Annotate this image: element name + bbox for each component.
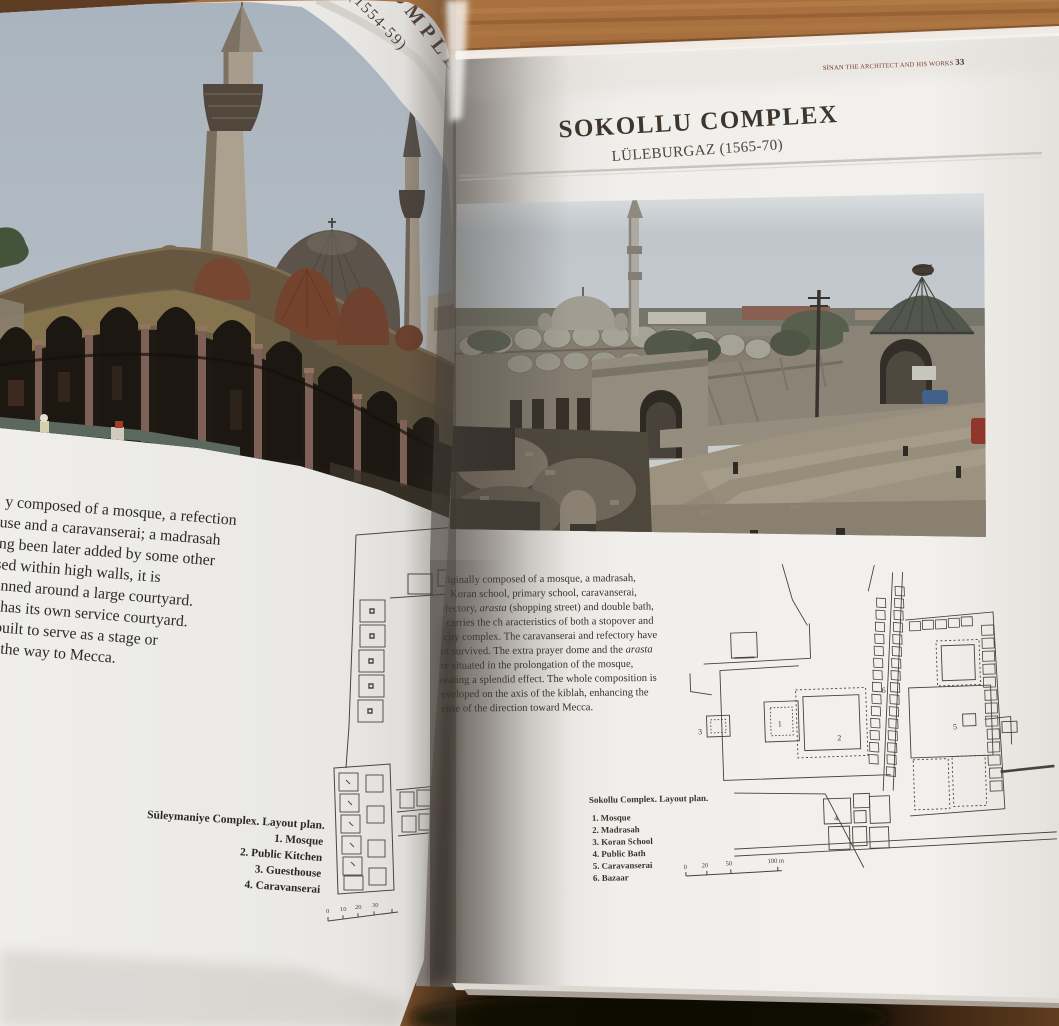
- svg-text:100 m: 100 m: [767, 858, 784, 866]
- svg-text:6: 6: [882, 686, 886, 695]
- svg-text:2: 2: [837, 733, 841, 742]
- svg-text:6. Bazaar: 6. Bazaar: [593, 872, 629, 883]
- svg-text:5. Caravanserai: 5. Caravanserai: [593, 860, 653, 871]
- svg-text:4: 4: [834, 813, 838, 822]
- svg-text:Sokollu Complex. Layout plan.: Sokollu Complex. Layout plan.: [589, 793, 708, 805]
- svg-text:10: 10: [340, 906, 347, 913]
- svg-text:0: 0: [684, 864, 687, 871]
- svg-text:20: 20: [355, 904, 362, 911]
- svg-text:2. Madrasah: 2. Madrasah: [592, 824, 640, 835]
- svg-text:1: 1: [778, 719, 782, 728]
- svg-text:3. Koran School: 3. Koran School: [592, 836, 653, 847]
- svg-text:20: 20: [702, 862, 709, 869]
- svg-text:3: 3: [698, 727, 702, 736]
- svg-text:5: 5: [953, 722, 957, 731]
- svg-text:50: 50: [725, 860, 732, 867]
- svg-text:0: 0: [326, 908, 329, 915]
- svg-text:1. Mosque: 1. Mosque: [592, 812, 631, 823]
- svg-text:4. Public Bath: 4. Public Bath: [592, 848, 645, 859]
- svg-text:30: 30: [372, 902, 379, 909]
